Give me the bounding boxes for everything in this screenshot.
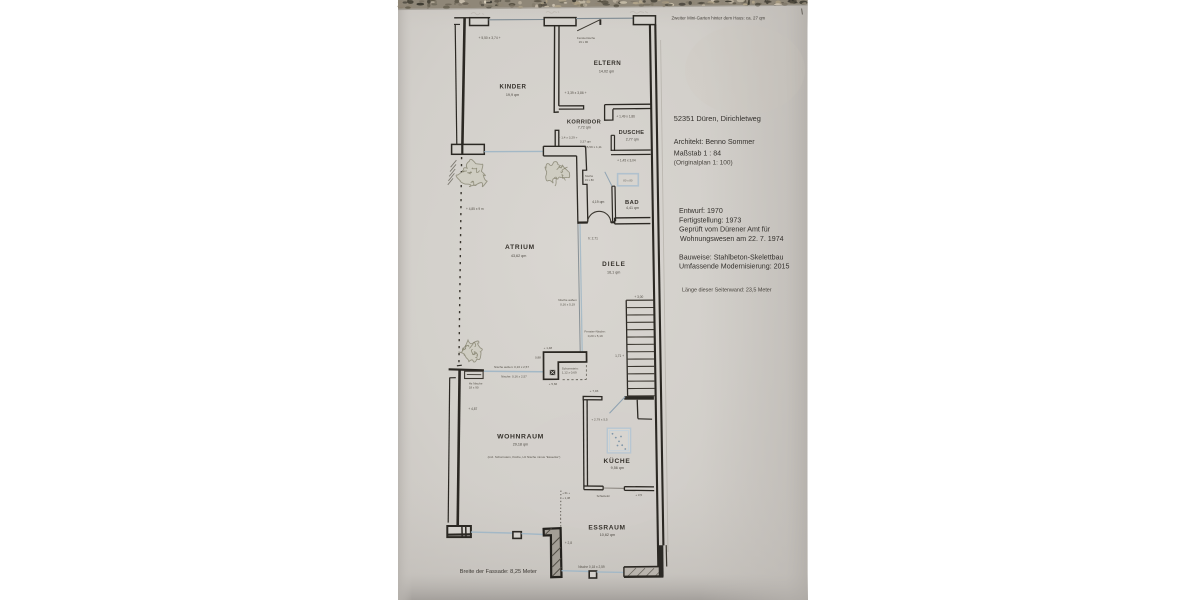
svg-text:ELTERN: ELTERN xyxy=(594,60,622,67)
svg-text:Breite der Fassade: 8,25 Meter: Breite der Fassade: 8,25 Meter xyxy=(460,569,537,575)
svg-text:Wohnungswesen am 22. 7. 1974: Wohnungswesen am 22. 7. 1974 xyxy=(680,235,784,243)
svg-text:Maßstab 1 : 84: Maßstab 1 : 84 xyxy=(674,149,721,157)
svg-text:+ 5,59 x 1,11: + 5,59 x 1,11 xyxy=(584,145,602,149)
svg-text:+ 2,79 x 5,5: + 2,79 x 5,5 xyxy=(591,418,608,422)
svg-text:0,88: 0,88 xyxy=(535,355,541,359)
svg-text:+ 3,39 x 3,86 +: + 3,39 x 3,86 + xyxy=(565,91,587,95)
svg-text:Nische: Nische xyxy=(585,174,594,178)
svg-text:0,16 x 5,19: 0,16 x 5,19 xyxy=(560,302,575,306)
svg-text:1,12 x 0,69: 1,12 x 0,69 xyxy=(562,370,577,374)
svg-text:+ 4,87: + 4,87 xyxy=(468,407,477,411)
svg-text:2,77 qm: 2,77 qm xyxy=(626,138,639,142)
svg-text:18 x 90: 18 x 90 xyxy=(469,385,479,389)
svg-text:+ 61 +: + 61 + xyxy=(562,491,570,495)
svg-text:KÜCHE: KÜCHE xyxy=(604,456,631,465)
svg-text:16,1 qm: 16,1 qm xyxy=(607,271,620,275)
svg-text:10,62 qm: 10,62 qm xyxy=(600,533,615,537)
svg-text:+ 3,5: + 3,5 xyxy=(635,493,642,497)
svg-text:19,9 qm: 19,9 qm xyxy=(506,93,519,97)
svg-text:ESSRAUM: ESSRAUM xyxy=(588,525,625,532)
svg-text:Entwurf: 1970: Entwurf: 1970 xyxy=(679,207,723,215)
svg-text:4,19 qm: 4,19 qm xyxy=(592,200,604,204)
svg-text:80 x 80: 80 x 80 xyxy=(623,179,633,183)
svg-text:Nische: 0,16 x 2,57: Nische: 0,16 x 2,57 xyxy=(501,374,527,378)
svg-text:Zweiter Mini-Garten hinter dem: Zweiter Mini-Garten hinter dem Haus: ca.… xyxy=(672,16,766,21)
svg-text:7,72 qm: 7,72 qm xyxy=(578,125,591,129)
svg-text:+ 5,66: + 5,66 xyxy=(549,382,558,386)
svg-text:+ 1,45 x 3,04: + 1,45 x 3,04 xyxy=(617,158,636,162)
svg-text:Länge dieser Seitenwand: 23,5: Länge dieser Seitenwand: 23,5 Meter xyxy=(682,287,772,293)
svg-text:Nische außen: Nische außen xyxy=(558,298,577,302)
svg-text:+ 1,49 x 1,86: + 1,49 x 1,86 xyxy=(616,114,635,118)
svg-text:1,71 +: 1,71 + xyxy=(615,354,624,358)
svg-text:19 x 80: 19 x 80 xyxy=(585,178,594,182)
svg-text:+ 7,03: + 7,03 xyxy=(590,389,599,393)
svg-text:Geprüft vom Dürener Amt für: Geprüft vom Dürener Amt für xyxy=(679,226,771,234)
svg-text:Fenster-Nische:: Fenster-Nische: xyxy=(584,330,605,334)
svg-text:ATRIUM: ATRIUM xyxy=(505,244,535,251)
svg-text:KINDER: KINDER xyxy=(499,84,526,91)
svg-text:Nische außen: 0,16 x 2,57: Nische außen: 0,16 x 2,57 xyxy=(494,365,529,369)
svg-text:+ 2,8: + 2,8 xyxy=(565,541,572,545)
svg-text:43,62 qm: 43,62 qm xyxy=(511,254,526,258)
svg-text:29,18 qm: 29,18 qm xyxy=(513,443,528,447)
svg-text:KORRIDOR: KORRIDOR xyxy=(567,119,601,125)
svg-text:DIELE: DIELE xyxy=(602,261,626,268)
svg-text:+ 5,50 x 3,74 +: + 5,50 x 3,74 + xyxy=(479,36,501,40)
svg-text:+ 3,00: + 3,00 xyxy=(634,295,643,299)
svg-text:Bauweise: Stahlbeton-Skelettba: Bauweise: Stahlbeton-Skelettbau xyxy=(679,253,784,261)
svg-text:+ 1,48: + 1,48 xyxy=(544,346,553,350)
svg-text:WOHNRAUM: WOHNRAUM xyxy=(497,434,544,441)
svg-text:h: 2,71: h: 2,71 xyxy=(588,236,598,240)
svg-text:14,02 qm: 14,02 qm xyxy=(599,69,614,73)
svg-text:Fensternische: Fensternische xyxy=(577,36,596,40)
svg-text:3,37 qm: 3,37 qm xyxy=(580,139,592,143)
svg-text:BAD: BAD xyxy=(625,200,639,206)
svg-text:+ 1,4 x 3,29 +: + 1,4 x 3,29 + xyxy=(559,136,578,140)
svg-text:0,20 x 5,19: 0,20 x 5,19 xyxy=(588,334,603,338)
svg-text:Architekt: Benno Sommer: Architekt: Benno Sommer xyxy=(674,138,755,146)
svg-text:DUSCHE: DUSCHE xyxy=(619,130,645,136)
svg-text:4,41 qm: 4,41 qm xyxy=(626,206,639,210)
svg-text:Schiebetür: Schiebetür xyxy=(597,494,610,498)
svg-text:+ 4,85 x 9 m: + 4,85 x 9 m xyxy=(466,207,484,211)
svg-text:19 x 90: 19 x 90 xyxy=(579,40,589,44)
svg-text:Fertigstellung: 1973: Fertigstellung: 1973 xyxy=(679,216,741,224)
svg-text:52351 Düren, Dirichletweg: 52351 Düren, Dirichletweg xyxy=(674,114,761,123)
svg-text:Schornstein:: Schornstein: xyxy=(562,366,579,370)
svg-text:(incl. Schornstein, Küche, Hz: (incl. Schornstein, Küche, Hz Nische min… xyxy=(488,455,561,459)
svg-text:Umfassende Modernisierung: 201: Umfassende Modernisierung: 2015 xyxy=(679,263,789,271)
svg-text:+ 1,38: + 1,38 xyxy=(562,496,570,500)
svg-text:9,56 qm: 9,56 qm xyxy=(611,466,624,470)
svg-text:(Originalplan 1: 100): (Originalplan 1: 100) xyxy=(674,160,733,167)
svg-text:Nische 0,18 x 2,59: Nische 0,18 x 2,59 xyxy=(578,565,605,569)
